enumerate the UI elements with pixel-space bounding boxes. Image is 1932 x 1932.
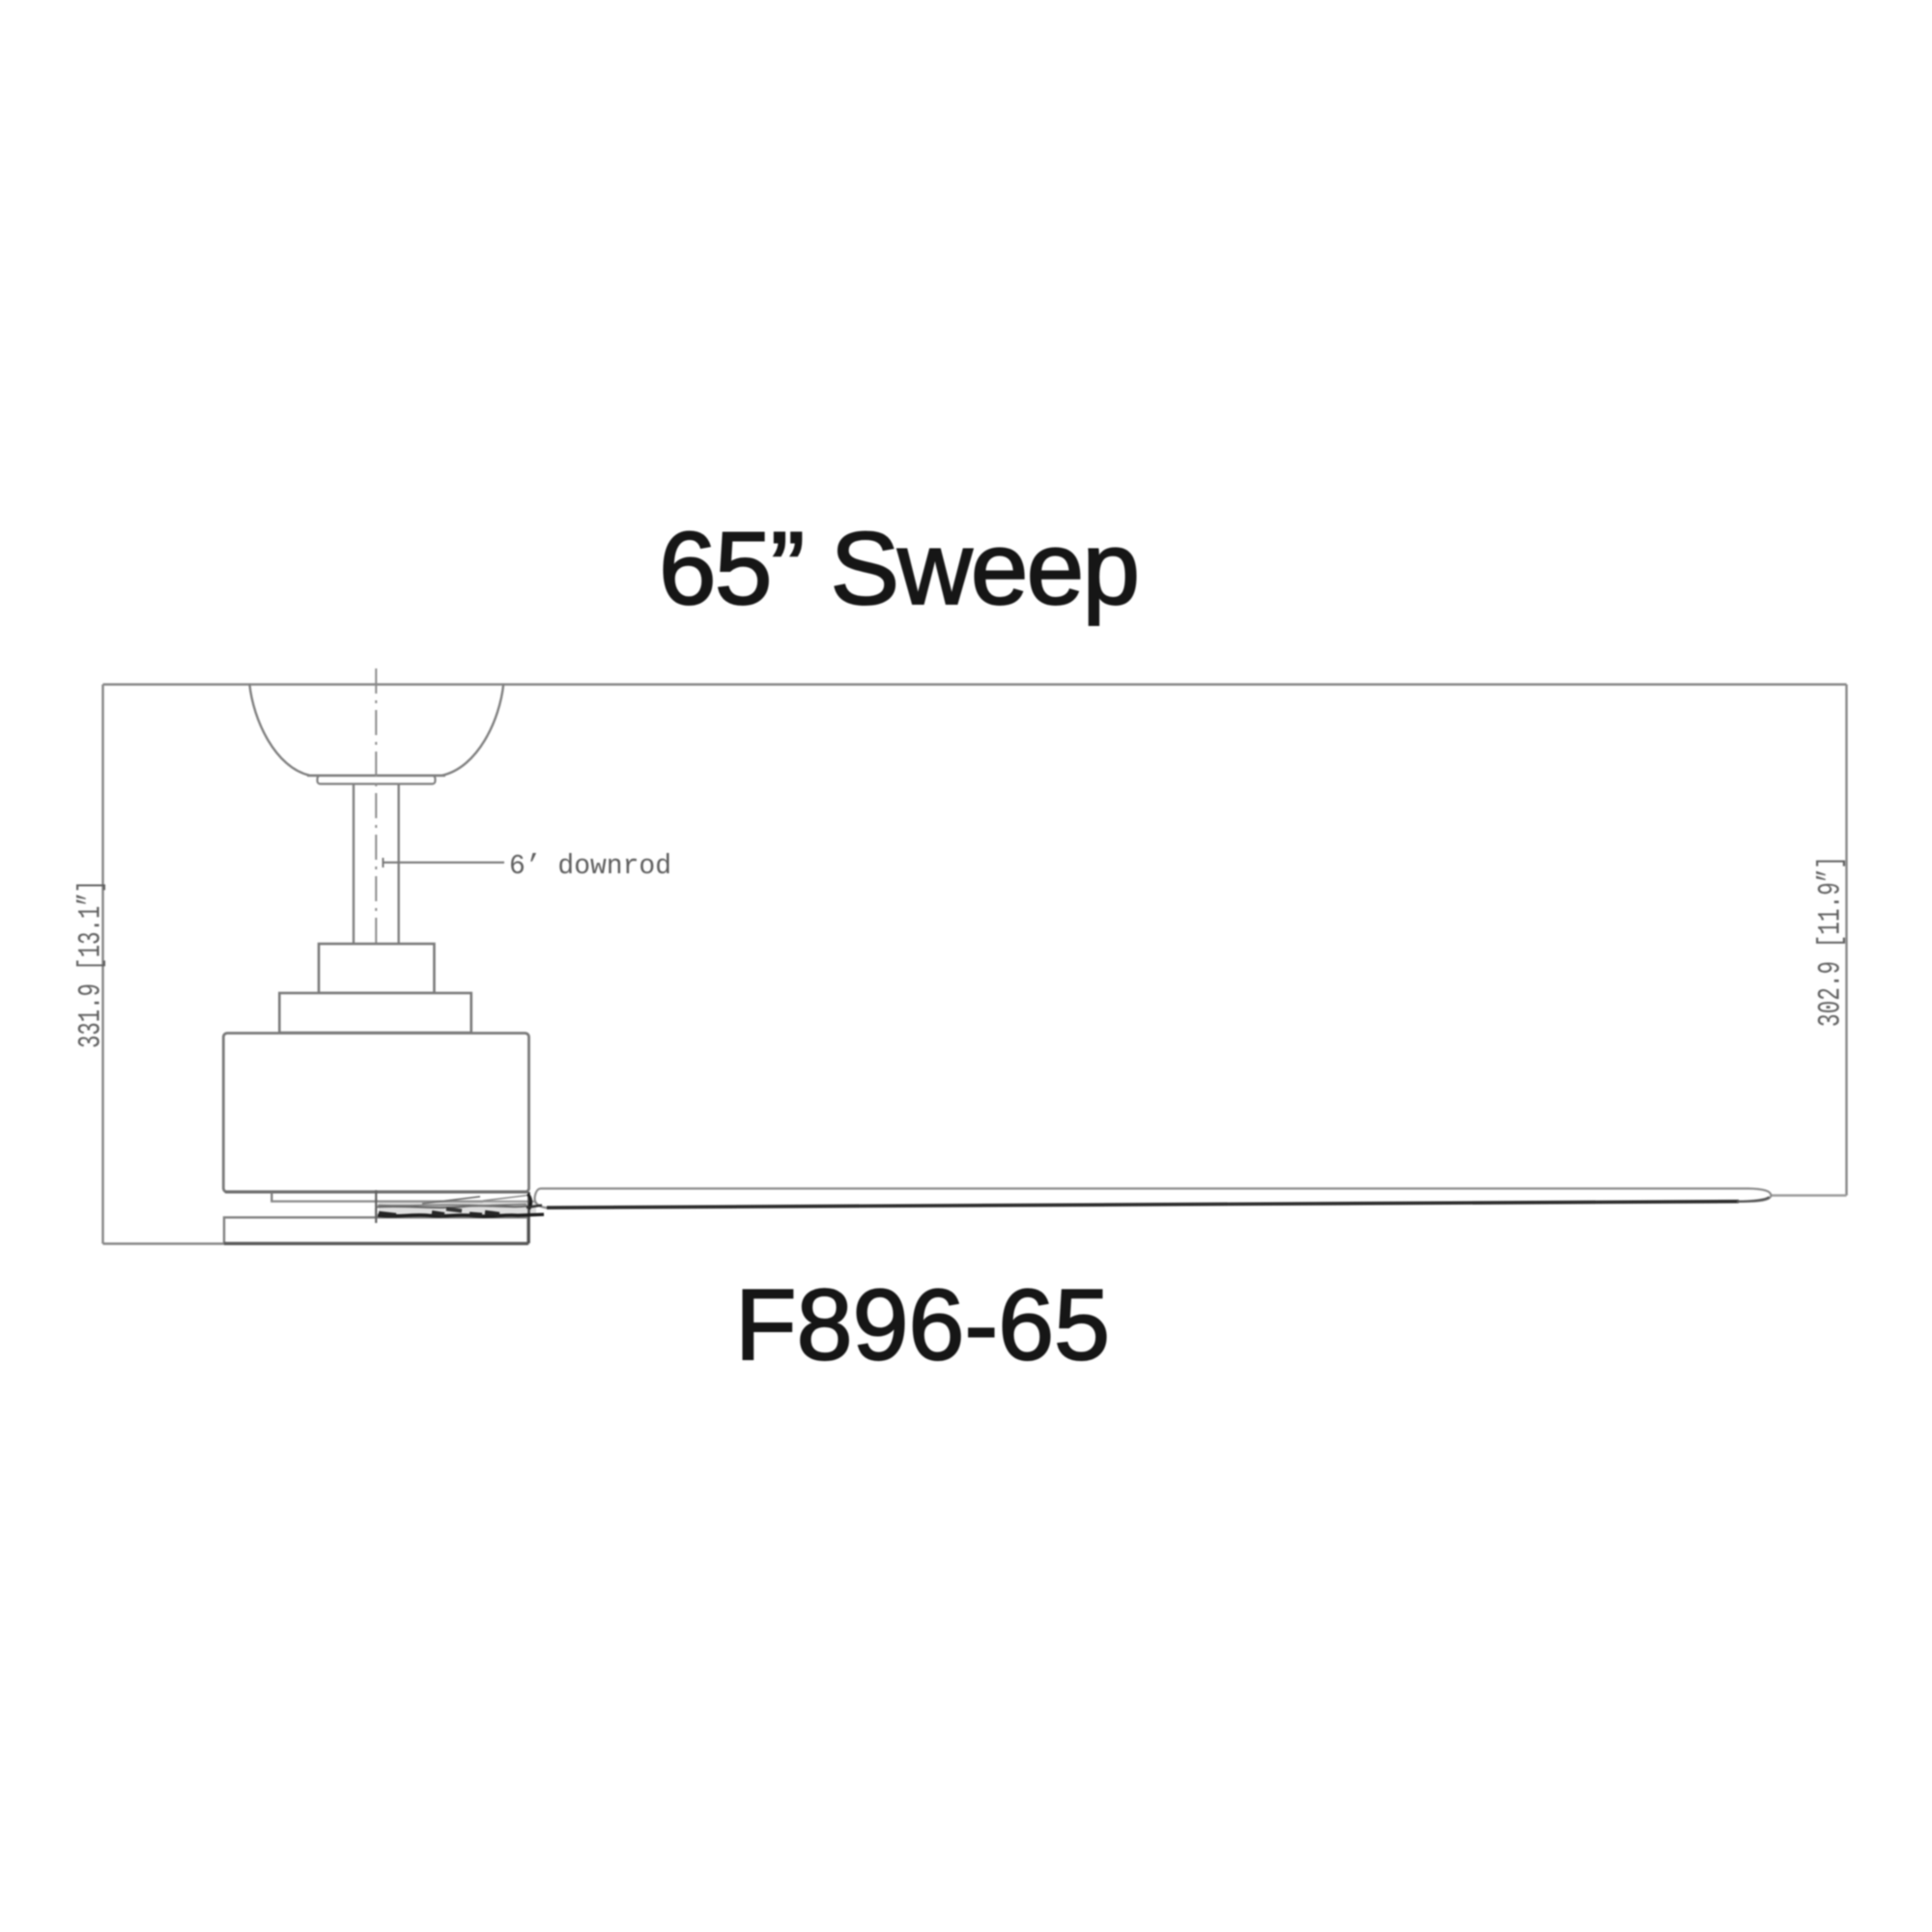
svg-text:65” Sweep: 65” Sweep [659, 510, 1140, 626]
svg-text:302.9 [11.9”]: 302.9 [11.9”] [1813, 856, 1849, 1027]
svg-text:331.9 [13.1”]: 331.9 [13.1”] [73, 880, 109, 1048]
svg-text:F896-65: F896-65 [735, 1269, 1110, 1381]
svg-text:6’ downrod: 6’ downrod [509, 850, 671, 882]
